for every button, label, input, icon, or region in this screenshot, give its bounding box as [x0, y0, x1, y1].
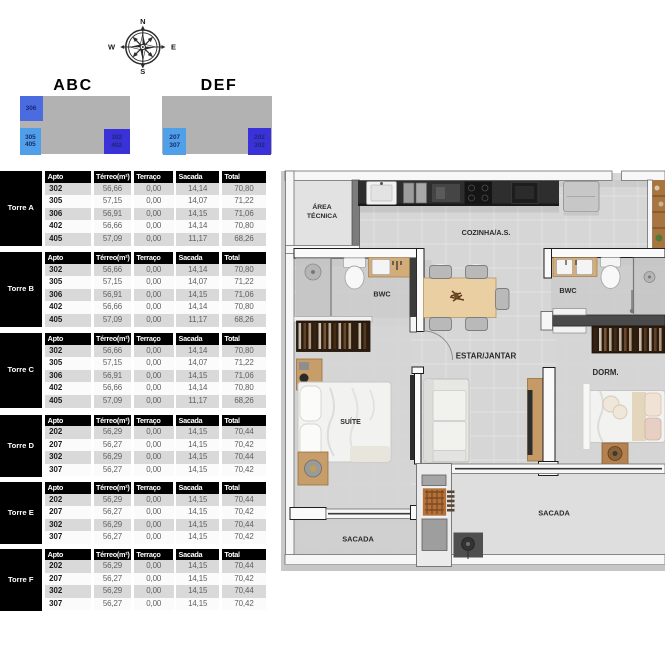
- svg-text:ÁREA: ÁREA: [312, 202, 331, 211]
- svg-text:TÉCNICA: TÉCNICA: [307, 211, 337, 220]
- svg-text:SUÍTE: SUÍTE: [340, 417, 361, 426]
- svg-text:N: N: [140, 17, 145, 26]
- svg-text:E: E: [171, 43, 176, 52]
- svg-text:DORM.: DORM.: [593, 368, 619, 377]
- svg-text:BWC: BWC: [373, 290, 390, 299]
- svg-text:S: S: [140, 67, 145, 76]
- svg-text:COZINHA/A.S.: COZINHA/A.S.: [462, 228, 511, 237]
- svg-text:W: W: [108, 43, 116, 52]
- svg-text:SACADA: SACADA: [342, 535, 374, 544]
- svg-text:SACADA: SACADA: [538, 509, 570, 518]
- svg-text:BWC: BWC: [559, 286, 576, 295]
- svg-text:ESTAR/JANTAR: ESTAR/JANTAR: [456, 352, 517, 361]
